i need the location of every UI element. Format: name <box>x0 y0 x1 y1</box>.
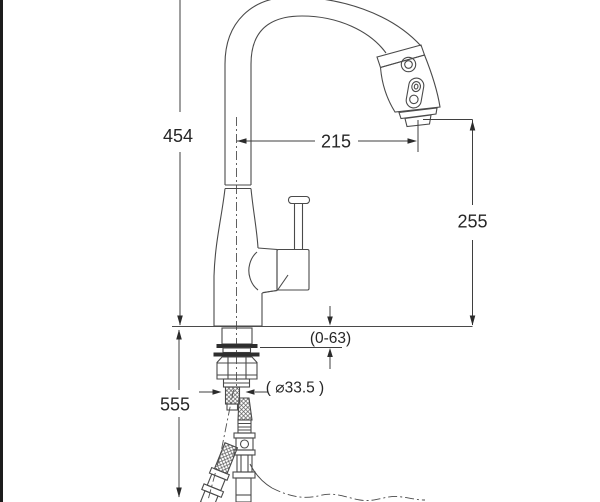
drawing-canvas: 454 215 255 555 (0-63) ( ⌀33.5 ) <box>0 0 600 502</box>
label-hose-length: 555 <box>160 395 190 415</box>
spray-mode-switch <box>405 77 425 109</box>
hose-braid <box>238 398 252 420</box>
spray-collar <box>377 45 425 68</box>
shank-end-cap <box>227 404 238 410</box>
escutcheon-flange <box>222 328 252 344</box>
rubber-washer-upper <box>217 344 258 348</box>
body-outline <box>214 189 262 327</box>
label-outlet-clearance: 255 <box>457 212 487 232</box>
label-hole-diameter: ( ⌀33.5 ) <box>266 380 324 397</box>
connector-port <box>241 440 249 448</box>
handle-stem <box>295 204 303 250</box>
handle-mount <box>258 248 277 293</box>
label-deck-thickness: (0-63) <box>310 330 351 347</box>
pullout-hose-path-dashdot <box>272 488 425 501</box>
spray-head <box>377 45 440 127</box>
technical-drawing: 454 215 255 555 (0-63) ( ⌀33.5 ) <box>0 0 600 502</box>
pullout-hose-curve <box>250 464 272 488</box>
ball-joint-arc <box>249 252 258 290</box>
spray-button-top <box>411 81 421 92</box>
handle-cap <box>289 197 310 204</box>
escutcheon-seam <box>278 275 288 290</box>
connector-flange-3 <box>233 472 255 478</box>
braided-shank <box>226 387 240 404</box>
label-spout-reach: 215 <box>321 132 351 152</box>
spray-ring-button-center <box>405 61 413 69</box>
tube-joint-line <box>225 185 251 189</box>
centerline <box>208 117 237 500</box>
connector-flange <box>234 433 255 438</box>
connector-flange-2 <box>234 450 255 455</box>
connector-tail <box>236 478 251 502</box>
spray-head-body <box>381 55 441 112</box>
mounting-nut <box>217 357 257 379</box>
label-spout-height: 454 <box>163 126 193 146</box>
hose-braid <box>214 443 237 474</box>
connector-body <box>237 455 252 472</box>
spout-arch <box>225 0 421 64</box>
connector-block <box>207 474 225 491</box>
dim-spout-height <box>177 0 183 326</box>
mounting-nut-facets <box>217 358 257 380</box>
rubber-washer-lower <box>214 353 260 357</box>
spray-button-bottom <box>409 95 419 105</box>
